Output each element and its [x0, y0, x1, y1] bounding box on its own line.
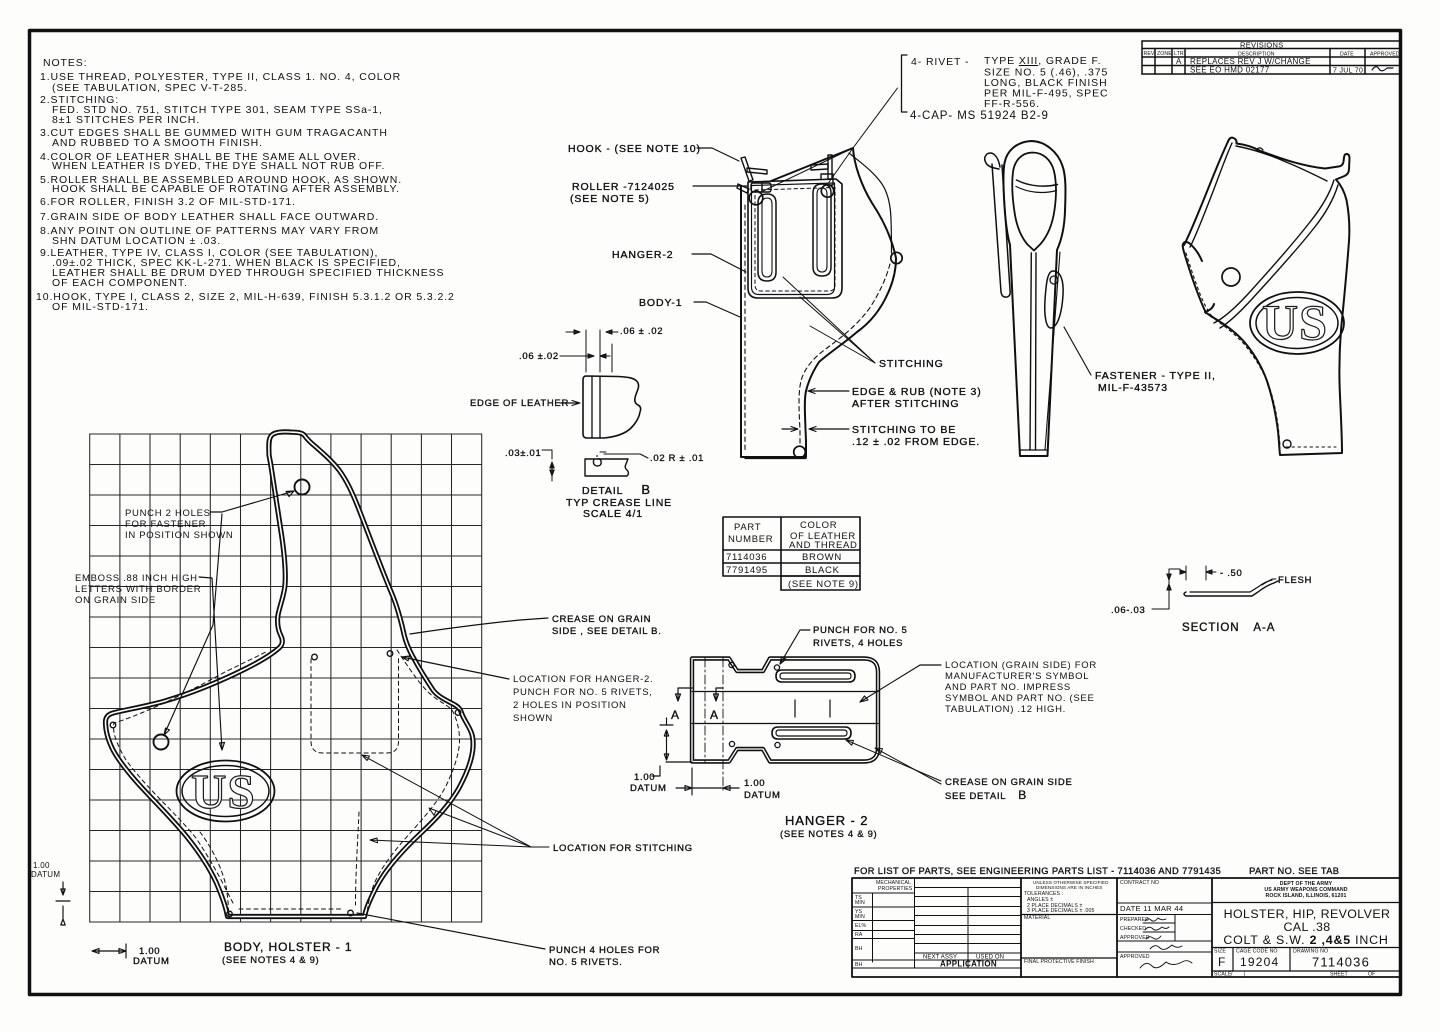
svg-text:|: | — [1244, 972, 1245, 978]
svg-text:CONTRACT NO: CONTRACT NO — [1120, 880, 1159, 886]
svg-text:PUNCH FOR NO. 5: PUNCH FOR NO. 5 — [813, 625, 907, 636]
svg-text:SEE EO HMD 02177: SEE EO HMD 02177 — [1190, 66, 1270, 75]
svg-text:F: F — [1218, 955, 1227, 969]
svg-text:ZONE: ZONE — [1157, 51, 1172, 57]
svg-text:SIDE , SEE DETAIL B.: SIDE , SEE DETAIL B. — [552, 626, 662, 637]
svg-text:DIMENSIONS ARE IN INCHES: DIMENSIONS ARE IN INCHES — [1036, 885, 1102, 890]
svg-text:BROWN: BROWN — [802, 552, 842, 563]
svg-text:LETTERS WITH BORDER: LETTERS WITH BORDER — [75, 584, 201, 595]
svg-text:BODY-1: BODY-1 — [639, 297, 683, 309]
svg-text:MANUFACTURER'S SYMBOL: MANUFACTURER'S SYMBOL — [945, 671, 1089, 682]
svg-text:1.00: 1.00 — [634, 772, 655, 783]
svg-text:EDGE OF LEATHER: EDGE OF LEATHER — [470, 398, 569, 409]
svg-text:NUMBER: NUMBER — [728, 534, 773, 545]
svg-text:FOR FASTENER: FOR FASTENER — [125, 519, 206, 530]
svg-text:ON GRAIN SIDE: ON GRAIN SIDE — [75, 595, 156, 606]
svg-text:7791495: 7791495 — [726, 565, 768, 576]
svg-text:LOCATION (GRAIN SIDE) FOR: LOCATION (GRAIN SIDE) FOR — [945, 660, 1097, 671]
svg-text:8±1 STITCHES PER INCH.: 8±1 STITCHES PER INCH. — [52, 114, 200, 126]
svg-text:TABULATION) .12 HIGH.: TABULATION) .12 HIGH. — [945, 704, 1066, 715]
svg-text:HOOK - (SEE NOTE 10): HOOK - (SEE NOTE 10) — [568, 143, 701, 155]
svg-text:COLOR: COLOR — [800, 520, 837, 531]
svg-text:HANGER - 2: HANGER - 2 — [785, 813, 868, 828]
svg-text:AND THREAD: AND THREAD — [789, 540, 858, 551]
svg-text:- .50: - .50 — [1220, 568, 1243, 579]
svg-text:CAL .38: CAL .38 — [1283, 920, 1330, 934]
svg-text:PUNCH 2 HOLES: PUNCH 2 HOLES — [125, 508, 211, 519]
svg-text:(SEE NOTE 5): (SEE NOTE 5) — [570, 193, 650, 205]
svg-text:APPROVED: APPROVED — [1370, 52, 1400, 58]
svg-text:US: US — [1262, 294, 1328, 350]
svg-text:PUNCH FOR NO. 5 RIVETS,: PUNCH FOR NO. 5 RIVETS, — [513, 687, 653, 698]
svg-text:MIN: MIN — [855, 914, 865, 920]
svg-text:BH: BH — [855, 946, 863, 952]
svg-text:SHOWN: SHOWN — [513, 713, 553, 724]
svg-text:CAGE CODE NO: CAGE CODE NO — [1236, 949, 1278, 955]
svg-text:CREASE ON GRAIN SIDE: CREASE ON GRAIN SIDE — [945, 777, 1073, 788]
svg-text:3 PLACE DECIMALS ± .005: 3 PLACE DECIMALS ± .005 — [1027, 908, 1094, 914]
svg-text:BODY, HOLSTER - 1: BODY, HOLSTER - 1 — [224, 940, 352, 954]
svg-text:FINAL PROTECTIVE FINISH: FINAL PROTECTIVE FINISH — [1024, 959, 1094, 965]
svg-text:CHECKED: CHECKED — [1120, 926, 1146, 932]
svg-text:.12 ± .02 FROM EDGE.: .12 ± .02 FROM EDGE. — [852, 436, 980, 448]
svg-text:MATERIAL: MATERIAL — [1024, 915, 1050, 921]
svg-text:(SEE TABULATION, SPEC V-T-2: (SEE TABULATION, SPEC V-T-285. — [52, 82, 248, 94]
svg-text:PROPERTIES: PROPERTIES — [878, 886, 913, 892]
svg-text:OF: OF — [1368, 972, 1375, 978]
svg-text:DATUM: DATUM — [744, 790, 781, 801]
svg-text:4- RIVET -: 4- RIVET - — [911, 56, 969, 68]
svg-text:OF MIL-STD-171.: OF MIL-STD-171. — [52, 301, 149, 313]
svg-text:6.FOR ROLLER, FINISH 3.2 O: 6.FOR ROLLER, FINISH 3.2 OF MIL-STD-171. — [40, 196, 296, 208]
svg-text:7 JUL 70: 7 JUL 70 — [1333, 68, 1363, 75]
svg-text:HOOK SHALL BE CAPABLE OF: HOOK SHALL BE CAPABLE OF ROTATING AFTER … — [52, 183, 400, 195]
svg-text:.03±.01: .03±.01 — [505, 448, 542, 459]
svg-text:.06 ±.02: .06 ±.02 — [519, 351, 559, 362]
svg-text:SCALE: SCALE — [1214, 972, 1232, 978]
svg-text:DATUM: DATUM — [31, 870, 60, 879]
svg-text:(SEE NOTE 9): (SEE NOTE 9) — [788, 579, 859, 590]
svg-text:US: US — [191, 764, 256, 819]
svg-text:A: A — [1176, 57, 1182, 66]
svg-text:NOTES:: NOTES: — [43, 57, 88, 69]
svg-text:EDGE & RUB (NOTE 3): EDGE & RUB (NOTE 3) — [852, 386, 982, 398]
svg-text:A: A — [710, 708, 719, 722]
svg-text:IN POSITION SHOWN: IN POSITION SHOWN — [125, 530, 234, 541]
svg-text:SCALE 4/1: SCALE 4/1 — [583, 508, 643, 520]
svg-text:APPROVED: APPROVED — [1120, 954, 1150, 960]
svg-text:BH: BH — [855, 962, 863, 968]
svg-text:2 HOLES IN POSITION: 2 HOLES IN POSITION — [513, 700, 627, 711]
svg-text:PUNCH 4 HOLES FOR: PUNCH 4 HOLES FOR — [549, 945, 660, 956]
svg-text:7114036: 7114036 — [726, 552, 767, 563]
svg-text:SIZE: SIZE — [1214, 949, 1226, 955]
svg-text:TYPE XIII, GRADE F.: TYPE XIII, GRADE F. — [984, 55, 1101, 67]
svg-text:CREASE ON GRAIN: CREASE ON GRAIN — [552, 614, 651, 625]
svg-text:OF EACH COMPONENT.: OF EACH COMPONENT. — [52, 277, 188, 289]
svg-text:(SEE NOTES 4 & 9): (SEE NOTES 4 & 9) — [780, 829, 877, 840]
svg-text:HOLSTER, HIP, REVOLVER: HOLSTER, HIP, REVOLVER — [1224, 907, 1391, 921]
svg-text:NO. 5 RIVETS.: NO. 5 RIVETS. — [549, 957, 623, 968]
svg-text:1.00: 1.00 — [744, 778, 765, 789]
svg-text:BLACK: BLACK — [805, 565, 840, 576]
svg-text:LOCATION FOR HANGER-2.: LOCATION FOR HANGER-2. — [513, 674, 653, 685]
svg-text:SHEET: SHEET — [1330, 972, 1349, 978]
svg-text:RA: RA — [855, 932, 863, 938]
svg-text:STITCHING TO BE: STITCHING TO BE — [852, 424, 956, 436]
svg-text:7114036: 7114036 — [1312, 955, 1370, 970]
svg-text:A: A — [671, 708, 680, 722]
svg-text:SHN DATUM LOCATION ± .03.: SHN DATUM LOCATION ± .03. — [52, 235, 221, 247]
svg-text:(SEE NOTES 4 & 9): (SEE NOTES 4 & 9) — [222, 955, 319, 966]
svg-text:SYMBOL AND PART NO. (SEE: SYMBOL AND PART NO. (SEE — [945, 693, 1095, 704]
svg-text:AFTER STITCHING: AFTER STITCHING — [852, 398, 959, 410]
svg-text:DATE: DATE — [1340, 52, 1354, 58]
svg-text:FASTENER - TYPE II,: FASTENER - TYPE II, — [1095, 370, 1216, 382]
svg-text:RIVETS, 4 HOLES: RIVETS, 4 HOLES — [813, 638, 903, 649]
svg-text:APPLICATION: APPLICATION — [940, 960, 997, 969]
svg-text:DATUM: DATUM — [133, 956, 170, 967]
svg-text:LOCATION FOR STITCHING: LOCATION FOR STITCHING — [553, 843, 693, 854]
svg-text:1.00: 1.00 — [33, 861, 50, 870]
svg-text:.06 ± .02: .06 ± .02 — [620, 326, 663, 337]
svg-text:FLESH: FLESH — [1278, 575, 1312, 586]
svg-text:COLT & S.W. 2 ,4&5 INCH: COLT & S.W. 2 ,4&5 INCH — [1223, 933, 1388, 947]
svg-text:PREPARED: PREPARED — [1120, 917, 1149, 923]
svg-text:DATUM: DATUM — [630, 783, 667, 794]
svg-text:AND PART NO. IMPRESS: AND PART NO. IMPRESS — [945, 682, 1071, 693]
svg-text:MIN: MIN — [855, 900, 865, 906]
svg-text:WHEN LEATHER IS DYED, THE: WHEN LEATHER IS DYED, THE DYE SHALL NOT … — [52, 160, 385, 172]
svg-text:EL%: EL% — [855, 923, 867, 929]
svg-text:4-CAP- MS 51924 B2-9: 4-CAP- MS 51924 B2-9 — [910, 110, 1049, 122]
svg-text:DATE 11 MAR 44: DATE 11 MAR 44 — [1120, 904, 1183, 913]
svg-text:REVISIONS: REVISIONS — [1240, 41, 1284, 50]
svg-text:STITCHING: STITCHING — [879, 358, 944, 370]
svg-text:FF-R-556.: FF-R-556. — [984, 98, 1040, 110]
svg-text:PART: PART — [734, 522, 761, 533]
svg-text:MIL-F-43573: MIL-F-43573 — [1098, 382, 1168, 394]
svg-text:REV: REV — [1144, 51, 1155, 57]
svg-text:EMBOSS .88 INCH HIGH: EMBOSS .88 INCH HIGH — [75, 573, 198, 584]
svg-text:FOR LIST OF PARTS, SEE EN: FOR LIST OF PARTS, SEE ENGINEERING PARTS… — [854, 866, 1339, 876]
svg-text:.02 R ± .01: .02 R ± .01 — [650, 453, 704, 464]
svg-text:APPROVED: APPROVED — [1120, 935, 1150, 941]
svg-text:HANGER-2: HANGER-2 — [612, 249, 673, 261]
svg-text:7.GRAIN SIDE OF BODY LEATH: 7.GRAIN SIDE OF BODY LEATHER SHALL FACE … — [40, 211, 379, 223]
svg-text:DETAILB: DETAILB — [582, 482, 651, 497]
svg-text:AND RUBBED TO A SMOOTH FI: AND RUBBED TO A SMOOTH FINISH. — [52, 137, 263, 149]
svg-text:.06-.03: .06-.03 — [1111, 605, 1145, 616]
svg-text:SECTIONA-A: SECTIONA-A — [1182, 622, 1275, 634]
svg-text:ROLLER -7124025: ROLLER -7124025 — [572, 181, 675, 193]
svg-text:19204: 19204 — [1240, 955, 1279, 969]
svg-text:ROCK ISLAND, ILLINOIS, 6120: ROCK ISLAND, ILLINOIS, 61201 — [1266, 893, 1347, 899]
